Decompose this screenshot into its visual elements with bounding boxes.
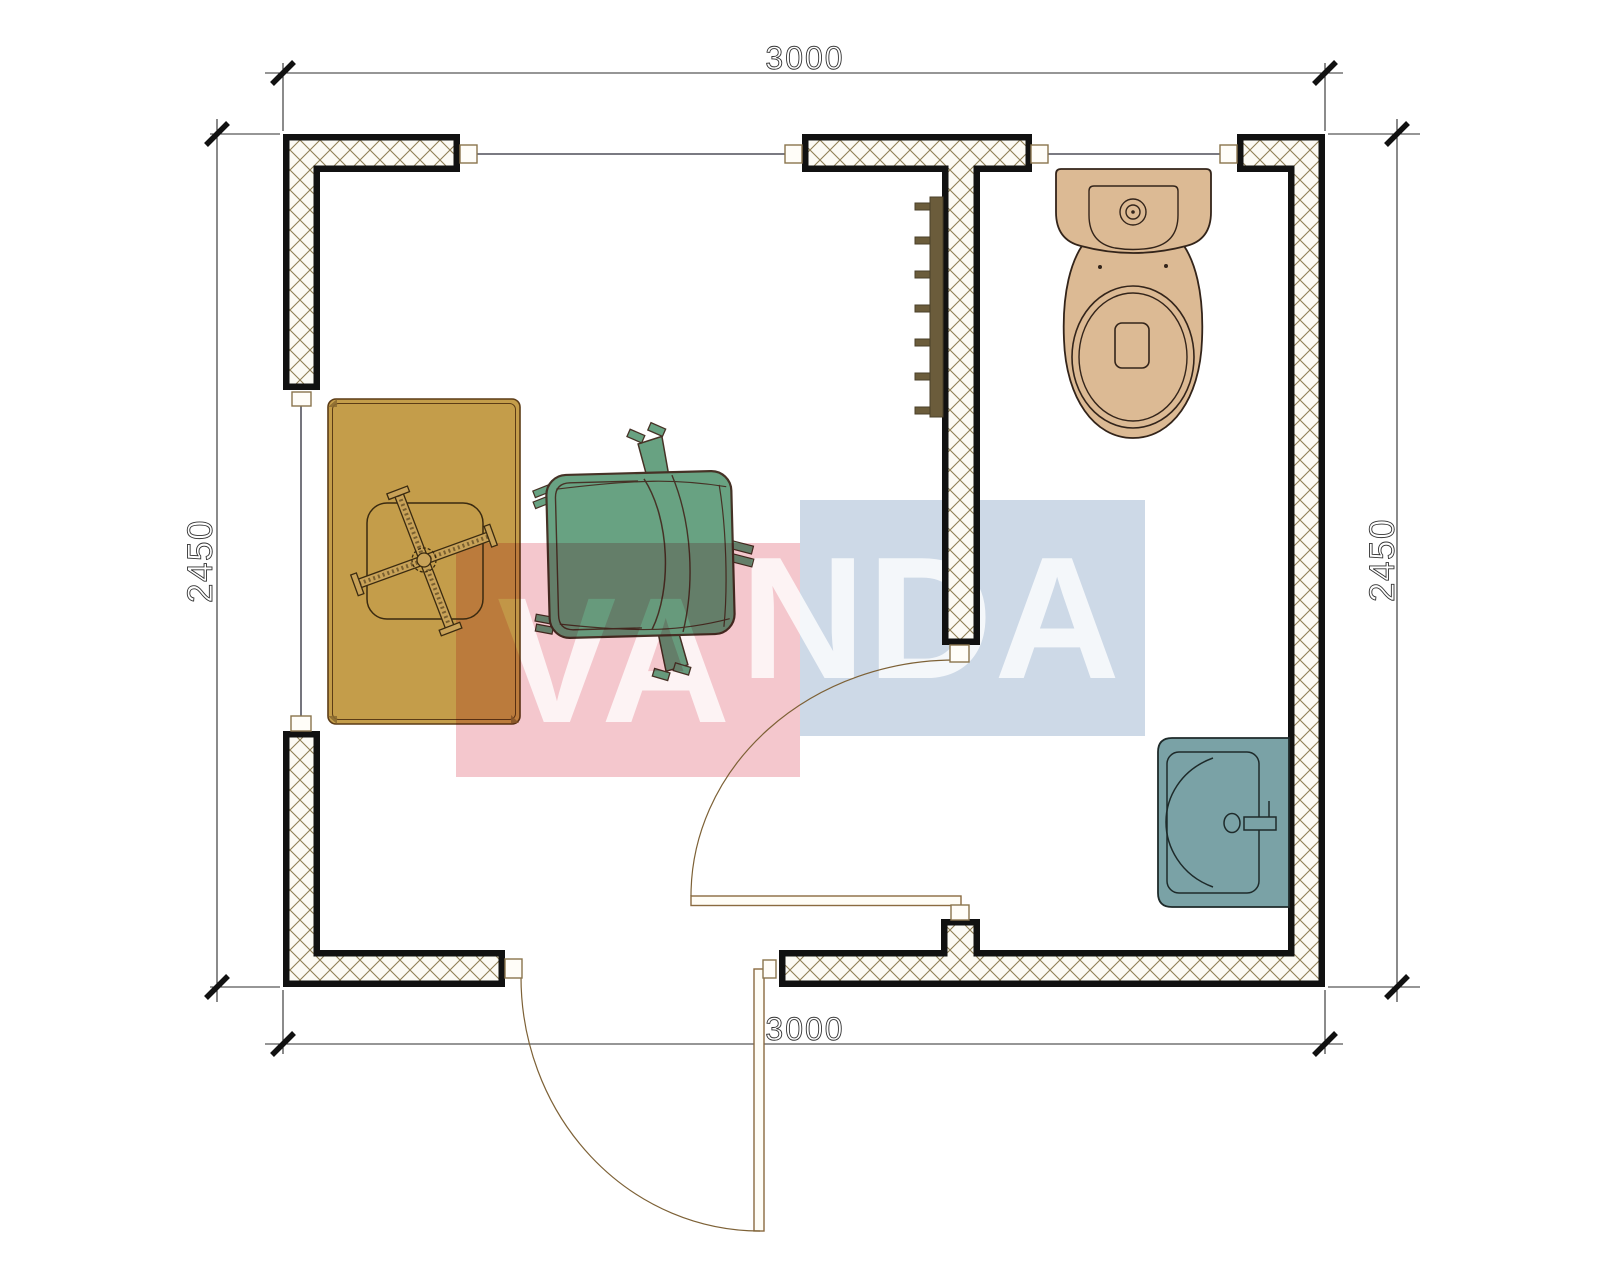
svg-text:2450: 2450 [181, 519, 220, 603]
svg-text:3000: 3000 [765, 40, 844, 76]
svg-text:NDA: NDA [740, 520, 1121, 715]
svg-text:2450: 2450 [1363, 518, 1402, 602]
svg-text:3000: 3000 [765, 1011, 844, 1047]
